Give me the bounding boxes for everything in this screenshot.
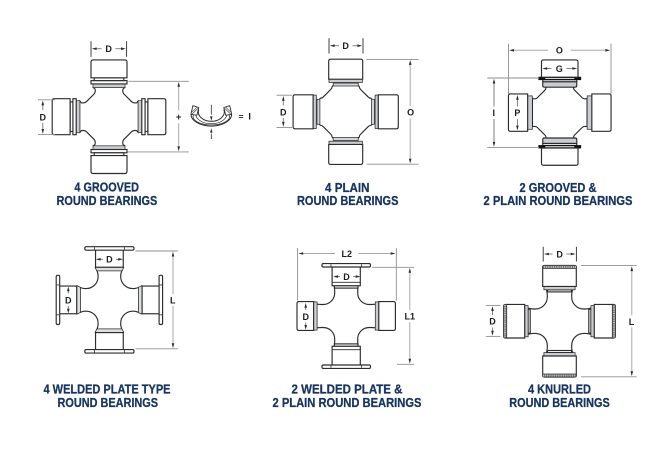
svg-text:D: D: [65, 295, 72, 305]
svg-text:2 PLAIN ROUND BEARINGS: 2 PLAIN ROUND BEARINGS: [484, 193, 633, 208]
svg-text:ROUND BEARINGS: ROUND BEARINGS: [297, 193, 399, 208]
svg-text:ROUND BEARINGS: ROUND BEARINGS: [56, 193, 157, 208]
svg-text:L: L: [170, 295, 176, 305]
svg-text:O: O: [407, 108, 414, 118]
svg-text:D: D: [105, 44, 112, 54]
svg-text:L: L: [629, 317, 635, 327]
svg-text:=: =: [238, 111, 243, 121]
svg-text:ROUND BEARINGS: ROUND BEARINGS: [58, 395, 159, 410]
svg-text:D: D: [343, 272, 350, 282]
svg-text:L1: L1: [405, 312, 416, 322]
svg-text:2 PLAIN ROUND BEARINGS: 2 PLAIN ROUND BEARINGS: [273, 395, 422, 410]
svg-text:G: G: [556, 64, 563, 74]
svg-text:I: I: [493, 108, 496, 118]
svg-text:D: D: [106, 255, 113, 265]
svg-text:L2: L2: [342, 249, 353, 259]
svg-text:O: O: [556, 46, 563, 56]
svg-text:D: D: [556, 249, 563, 259]
svg-text:P: P: [514, 108, 520, 118]
svg-text:D: D: [280, 107, 287, 117]
svg-text:D: D: [342, 41, 349, 51]
svg-text:D: D: [489, 317, 496, 327]
svg-text:I: I: [248, 112, 251, 122]
svg-text:+: +: [176, 112, 182, 123]
svg-text:D: D: [302, 312, 309, 322]
svg-text:D: D: [40, 112, 47, 122]
svg-text:ROUND BEARINGS: ROUND BEARINGS: [509, 395, 610, 410]
